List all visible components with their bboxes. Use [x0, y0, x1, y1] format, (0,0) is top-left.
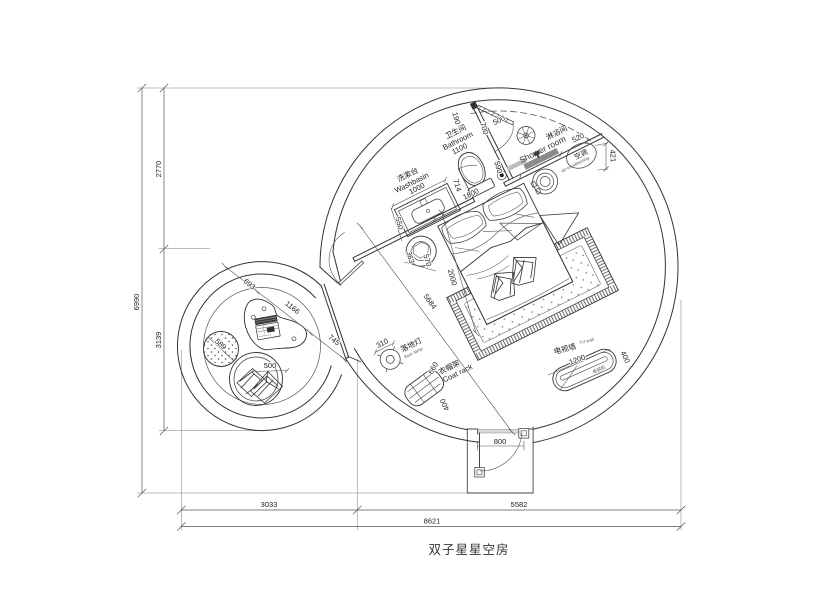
svg-text:2770: 2770: [154, 161, 163, 178]
svg-text:421: 421: [608, 149, 618, 162]
svg-text:5684: 5684: [421, 292, 438, 311]
svg-text:190: 190: [450, 111, 462, 126]
svg-text:1200: 1200: [568, 353, 587, 367]
svg-text:800: 800: [494, 437, 507, 446]
svg-text:570: 570: [421, 253, 433, 268]
svg-text:550: 550: [393, 216, 405, 231]
svg-text:310: 310: [375, 336, 390, 350]
svg-text:5582: 5582: [511, 500, 528, 509]
svg-text:2000: 2000: [446, 268, 459, 287]
svg-text:6990: 6990: [132, 294, 141, 311]
svg-text:400: 400: [619, 349, 632, 364]
svg-text:1166: 1166: [283, 299, 301, 316]
svg-text:3139: 3139: [154, 332, 163, 349]
svg-text:TV wall: TV wall: [579, 337, 595, 346]
svg-text:500: 500: [264, 361, 277, 370]
svg-text:714: 714: [451, 178, 463, 193]
svg-text:745: 745: [326, 333, 341, 348]
svg-text:双子星星空房: 双子星星空房: [428, 542, 509, 557]
svg-text:400: 400: [438, 397, 452, 412]
svg-text:电视墙: 电视墙: [553, 341, 578, 357]
svg-text:8621: 8621: [424, 517, 441, 526]
svg-text:590: 590: [492, 160, 504, 175]
svg-text:700: 700: [478, 121, 490, 136]
svg-text:3033: 3033: [261, 500, 278, 509]
